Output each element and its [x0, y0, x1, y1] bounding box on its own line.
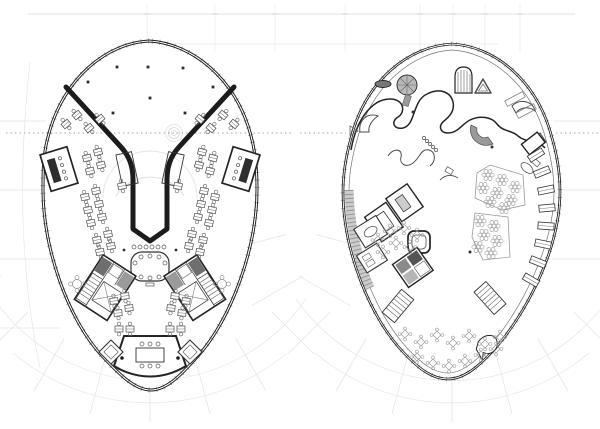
- fan-line: [90, 356, 106, 414]
- column-dot: [116, 66, 119, 69]
- column-dot: [175, 249, 178, 252]
- fan-line: [236, 339, 266, 391]
- fan-line: [538, 339, 568, 391]
- bench: [375, 81, 391, 88]
- column-dot: [87, 81, 90, 84]
- spiral-stair-treads: [397, 75, 417, 95]
- column-dot: [184, 112, 187, 115]
- fan-line: [336, 339, 366, 391]
- boardroom-table: [131, 252, 169, 281]
- drawing-sheet: [0, 0, 600, 429]
- column-dot: [176, 356, 180, 360]
- fan-line: [0, 276, 1, 306]
- column-dot: [469, 251, 472, 254]
- column-dot: [412, 111, 415, 114]
- floor-plan-drawing: [0, 0, 600, 429]
- kitchen-counter-group: [538, 222, 554, 230]
- grid-edge-curve: [23, 62, 40, 368]
- column-dot: [123, 249, 126, 252]
- fan-line: [299, 276, 351, 306]
- fan-line: [288, 312, 330, 354]
- column-dot: [182, 67, 185, 70]
- fan-line: [195, 356, 211, 414]
- fan-line: [251, 276, 303, 306]
- column-dot: [212, 86, 215, 89]
- fan-line: [392, 356, 408, 414]
- column-dot: [149, 97, 152, 100]
- floor-plan-left: [6, 41, 292, 390]
- arch-niche: [455, 67, 472, 93]
- kitchen-counter-group: [539, 204, 556, 212]
- column-dot: [147, 66, 150, 69]
- fan-line: [272, 312, 314, 354]
- fan-line: [34, 339, 64, 391]
- column-dot: [120, 356, 124, 360]
- column-dot: [112, 112, 115, 115]
- floor-plan-right: [300, 0, 600, 379]
- fan-line: [497, 356, 513, 414]
- column-dot: [491, 146, 494, 149]
